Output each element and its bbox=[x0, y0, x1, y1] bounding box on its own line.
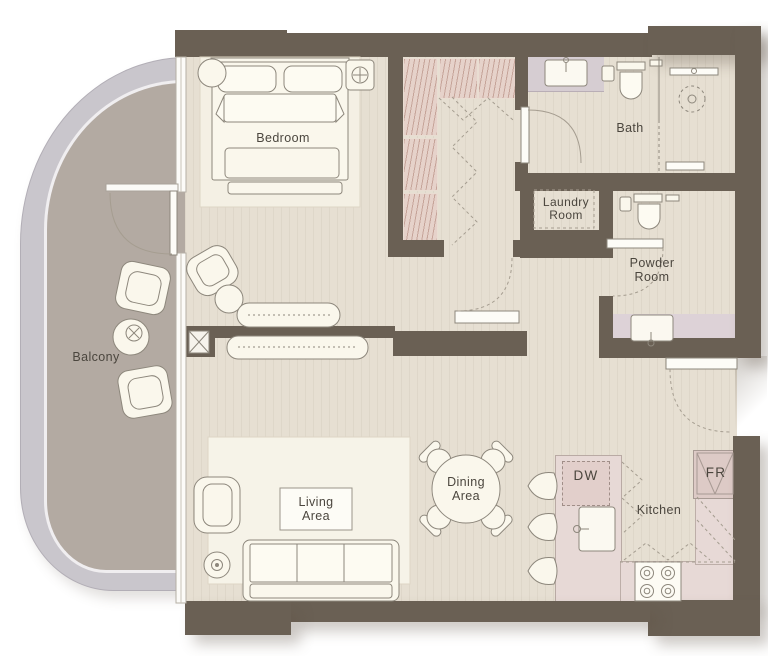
powder-towel-bar bbox=[666, 195, 679, 201]
sofa bbox=[243, 540, 399, 601]
room-label-balcony: Balcony bbox=[46, 350, 146, 364]
shower-drain bbox=[679, 86, 705, 112]
bedroom-door-arc bbox=[457, 258, 512, 311]
powder-sink bbox=[631, 315, 673, 341]
closet-hanging-dashes bbox=[439, 98, 513, 120]
label-text: Area bbox=[266, 509, 366, 523]
label-fridge: FR bbox=[691, 465, 741, 480]
bed-pillow bbox=[284, 66, 342, 92]
shower-curb bbox=[666, 162, 704, 170]
bedroom-door-leaf bbox=[455, 311, 519, 323]
toilet-tank bbox=[617, 62, 645, 70]
label-text: Kitchen bbox=[609, 503, 709, 517]
powder-toilet-bowl bbox=[638, 204, 660, 229]
label-text: Dining bbox=[416, 475, 516, 489]
label-text: Bedroom bbox=[233, 131, 333, 145]
structural-column bbox=[189, 331, 209, 353]
furniture-layer bbox=[0, 0, 768, 656]
room-label-laundry: Laundry Room bbox=[516, 196, 616, 222]
room-label-living: Living Area bbox=[266, 495, 366, 523]
entry-door-leaf bbox=[666, 358, 737, 369]
label-text: Living bbox=[266, 495, 366, 509]
shower-drain-center bbox=[688, 95, 696, 103]
bar-stool bbox=[528, 514, 557, 541]
balcony-screen bbox=[106, 184, 178, 191]
balcony-door-leaf bbox=[170, 191, 177, 255]
bar-stool bbox=[528, 558, 557, 585]
closet-hanging-dashes bbox=[452, 97, 477, 245]
powder-toilet-tank bbox=[634, 194, 662, 202]
room-label-kitchen: Kitchen bbox=[609, 503, 709, 517]
living-armchair bbox=[194, 477, 240, 533]
powder-door-leaf bbox=[607, 239, 663, 248]
label-text: DW bbox=[574, 468, 599, 483]
label-dishwasher: DW bbox=[561, 468, 611, 483]
toilet-bowl bbox=[620, 72, 642, 99]
planter-icon bbox=[352, 67, 368, 83]
label-text: Bath bbox=[580, 121, 680, 135]
bed-foot-bench bbox=[225, 148, 339, 178]
room-label-bedroom: Bedroom bbox=[233, 131, 333, 145]
label-text: Room bbox=[602, 270, 702, 284]
room-label-bath: Bath bbox=[580, 121, 680, 135]
balcony-chair bbox=[114, 259, 173, 316]
floor-plan: Bedroom Bath Laundry Room Powder Room Ba… bbox=[0, 0, 768, 656]
towel-bar bbox=[650, 60, 662, 66]
bed-runner bbox=[228, 182, 342, 194]
label-text: FR bbox=[706, 465, 726, 480]
bath-door-arc bbox=[528, 110, 581, 163]
floor-lamp-icon bbox=[204, 552, 230, 578]
bed-duvet bbox=[224, 94, 336, 122]
stove bbox=[635, 562, 681, 601]
balcony-door-arc bbox=[110, 193, 172, 254]
label-text: Room bbox=[516, 209, 616, 222]
label-text: Balcony bbox=[46, 350, 146, 364]
bath-door-leaf bbox=[521, 107, 529, 163]
bar-stool bbox=[528, 473, 557, 500]
bedside-table bbox=[198, 59, 226, 87]
entry-door-arc bbox=[670, 369, 731, 432]
balcony-chair bbox=[116, 364, 174, 420]
room-label-dining: Dining Area bbox=[416, 475, 516, 503]
label-text: Powder bbox=[602, 256, 702, 270]
room-label-powder: Powder Room bbox=[602, 256, 702, 284]
bath-bin bbox=[602, 66, 614, 81]
bed-pillow bbox=[218, 66, 276, 92]
powder-bin bbox=[620, 197, 631, 211]
label-text: Area bbox=[416, 489, 516, 503]
